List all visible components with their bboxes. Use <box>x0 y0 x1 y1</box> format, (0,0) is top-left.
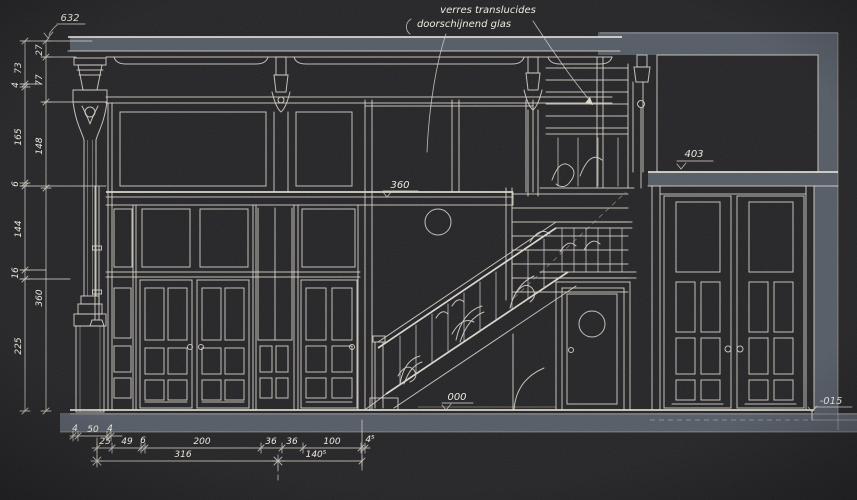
blueprint-canvas: 73 4 165 6 144 16 225 27 77 148 360 4 50… <box>0 0 857 500</box>
blueprint-page: 73 4 165 6 144 16 225 27 77 148 360 4 50… <box>0 0 857 500</box>
vignette-overlay <box>0 0 857 500</box>
